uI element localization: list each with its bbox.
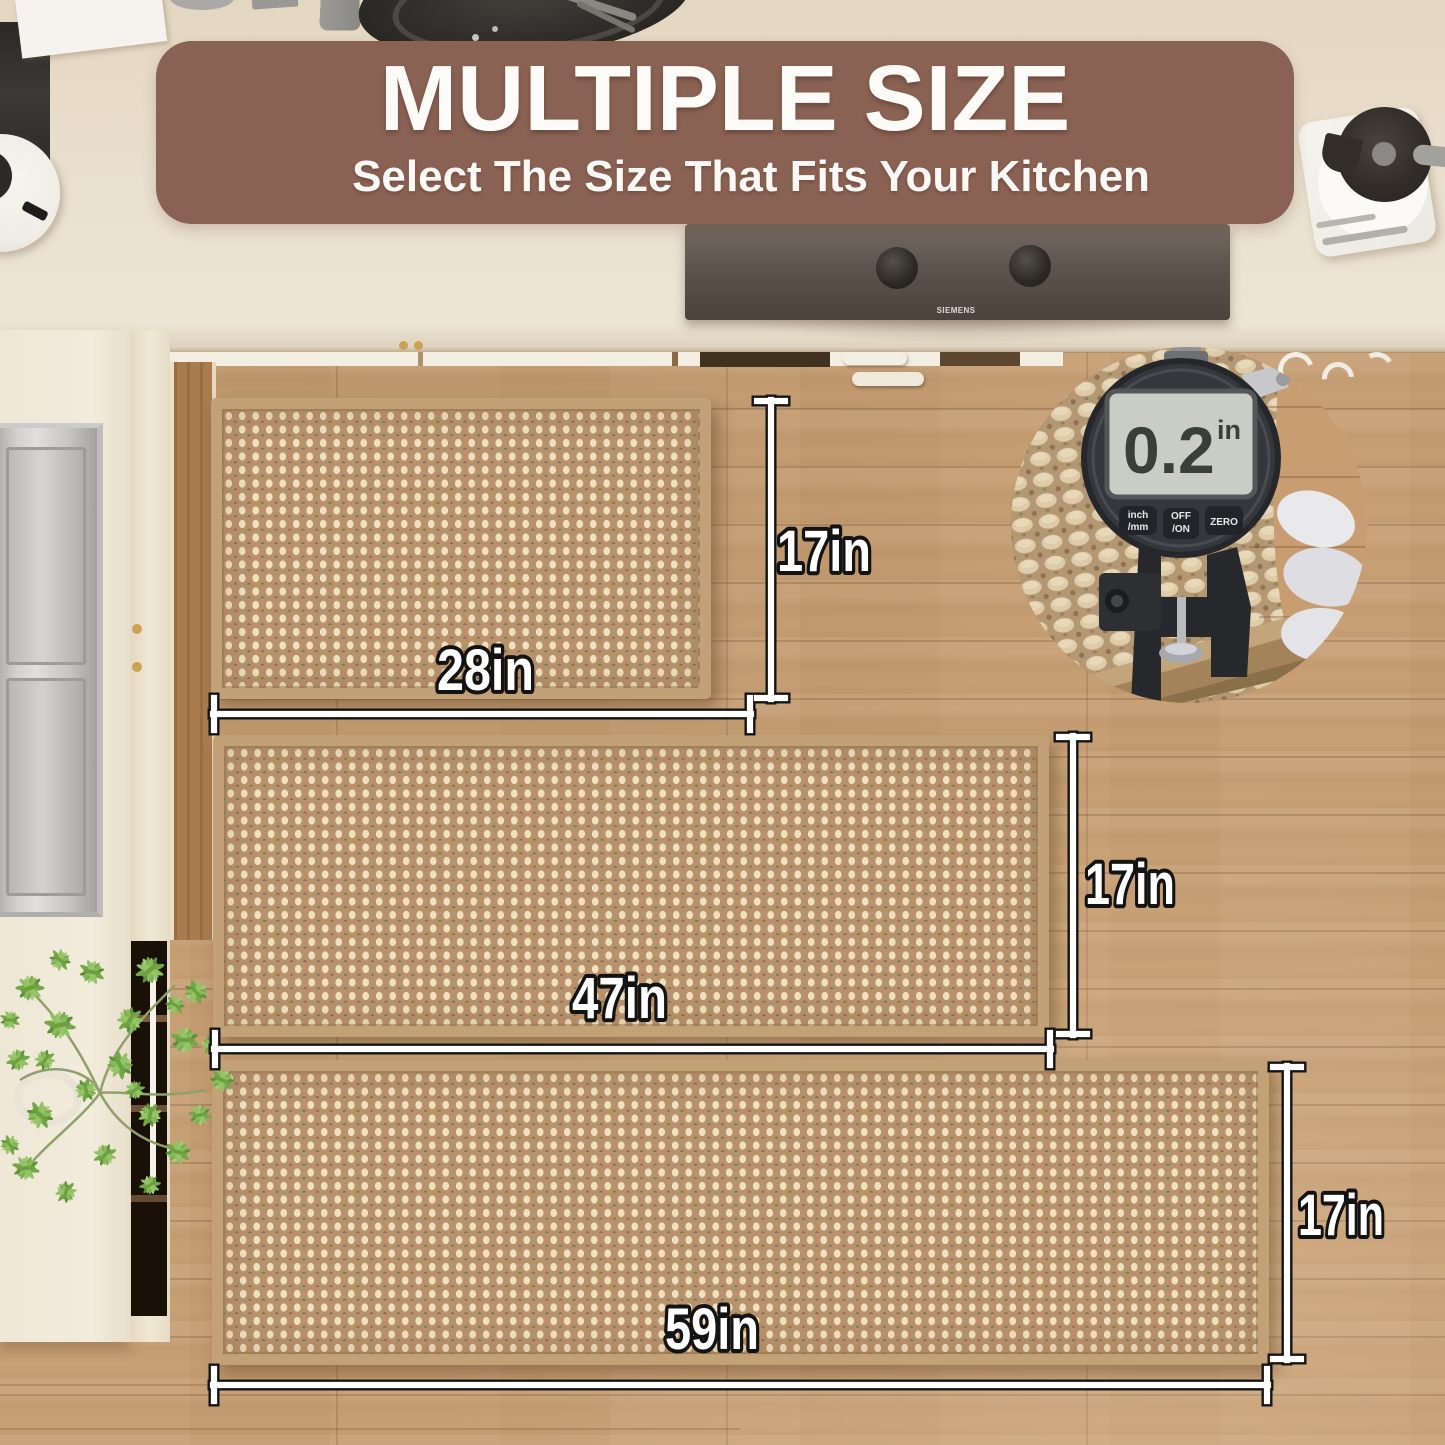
svg-text:OFF: OFF bbox=[1171, 511, 1191, 522]
svg-text:47in: 47in bbox=[572, 966, 667, 1031]
svg-text:in: in bbox=[1217, 415, 1241, 445]
svg-text:0.2: 0.2 bbox=[1123, 413, 1215, 487]
svg-text:59in: 59in bbox=[665, 1297, 759, 1362]
svg-text:/ON: /ON bbox=[1172, 524, 1190, 535]
svg-text:/mm: /mm bbox=[1128, 522, 1149, 533]
svg-text:17in: 17in bbox=[1298, 1183, 1384, 1248]
svg-text:28in: 28in bbox=[437, 638, 534, 703]
svg-text:inch: inch bbox=[1128, 510, 1149, 521]
svg-text:17in: 17in bbox=[777, 519, 871, 584]
svg-text:ZERO: ZERO bbox=[1210, 517, 1238, 528]
svg-text:17in: 17in bbox=[1085, 852, 1175, 917]
